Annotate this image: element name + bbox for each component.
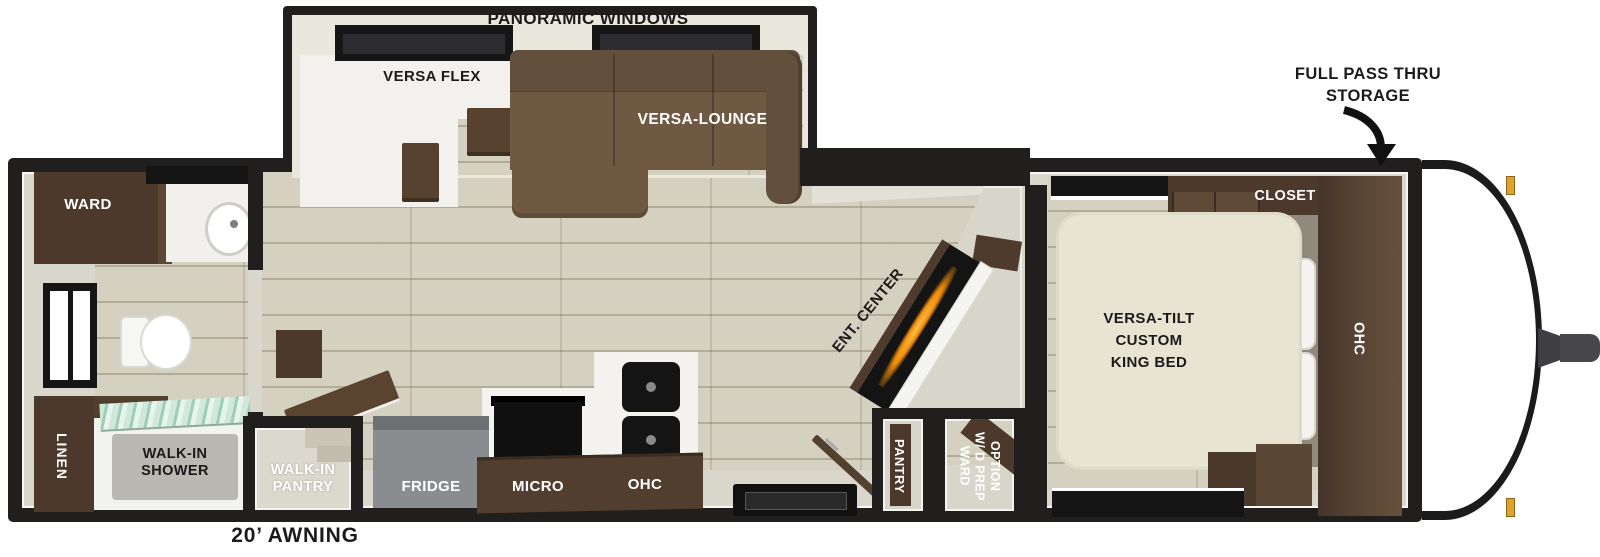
bath-ward-label: WARD	[34, 196, 142, 213]
closet-label: CLOSET	[1240, 188, 1330, 205]
bath-sink-bowl	[205, 202, 253, 256]
sink-drain-lower	[646, 435, 656, 445]
toilet-bowl	[140, 314, 192, 370]
bath-counter-dark	[146, 166, 250, 184]
sofa-seat	[510, 92, 800, 170]
marker-light-top	[1506, 176, 1515, 195]
king-bed-label: VERSA-TILT CUSTOM KING BED	[1078, 308, 1220, 373]
sink-drain-upper	[646, 382, 656, 392]
bath-sink-drain	[230, 220, 238, 228]
panoramic-window-left	[335, 25, 513, 61]
bath-window	[43, 283, 97, 388]
sofa-seam-1	[613, 54, 615, 166]
wall-board	[276, 330, 322, 378]
linen-label: LINEN	[54, 412, 70, 500]
storage-arrow-icon	[1330, 106, 1410, 168]
top-wall-segment	[800, 148, 1030, 186]
panoramic-windows-label: PANORAMIC WINDOWS	[438, 9, 738, 29]
bedroom-window-bottom	[1052, 488, 1244, 517]
versa-flex-label: VERSA FLEX	[357, 68, 507, 85]
full-pass-thru-label: FULL PASS THRU STORAGE	[1258, 64, 1478, 108]
bath-window-pane	[73, 291, 91, 380]
sofa-seam-2	[712, 54, 714, 166]
full-pass-thru-line2: STORAGE	[1326, 87, 1410, 105]
pantry-shelf-step2	[317, 446, 351, 462]
bed-label-line1: VERSA-TILT	[1103, 310, 1194, 327]
bed-foot-cabinet-right	[1256, 444, 1312, 506]
ward-wd-line3: OPTION	[988, 441, 1002, 491]
walk-in-pantry-line2: PANTRY	[273, 479, 333, 495]
bath-ward-cabinet	[34, 172, 172, 264]
ward-wd-label: WARD W/ D PREP OPTION	[945, 420, 1014, 512]
hitch-bar	[1560, 334, 1600, 362]
awning-label: 20’ AWNING	[210, 524, 380, 548]
walk-in-pantry-line1: WALK-IN	[271, 462, 336, 478]
front-cap	[1422, 160, 1542, 520]
walk-in-shower-line2: SHOWER	[141, 463, 209, 479]
bedroom-wall	[1025, 185, 1047, 522]
bathroom-wall-upper	[248, 158, 263, 270]
ward-wd-line1: WARD	[957, 446, 971, 486]
micro-label: MICRO	[500, 478, 576, 495]
entry-step-well	[733, 484, 857, 516]
fridge-label: FRIDGE	[373, 478, 489, 495]
pantry-shelf-step1	[305, 428, 351, 448]
sofa-backrest	[510, 50, 800, 96]
window-glass	[343, 34, 505, 54]
kitchen-ohc-label: OHC	[612, 476, 678, 493]
marker-light-bottom	[1506, 498, 1515, 517]
bath-window-pane	[50, 291, 68, 380]
entry-step-inner	[745, 492, 847, 510]
sofa-chaise	[512, 166, 648, 218]
walk-in-pantry-label: WALK-IN PANTRY	[243, 462, 363, 495]
versa-lounge-label: VERSA-LOUNGE	[625, 111, 780, 129]
ward-wd-line2: W/ D PREP	[972, 432, 986, 501]
floorplan-canvas: PANORAMIC WINDOWS VERSA FLEX VERSA-LOUNG…	[0, 0, 1600, 557]
walk-in-shower-line1: WALK-IN	[143, 446, 208, 462]
full-pass-thru-line1: FULL PASS THRU	[1295, 65, 1441, 83]
walk-in-shower-label: WALK-IN SHOWER	[110, 446, 240, 479]
bed-label-line2: CUSTOM	[1115, 332, 1182, 349]
bed-label-line3: KING BED	[1111, 354, 1188, 371]
pantry-closet-label: PANTRY	[891, 428, 906, 504]
flex-table-small	[402, 143, 439, 202]
bedroom-ohc-label: OHC	[1350, 312, 1367, 366]
